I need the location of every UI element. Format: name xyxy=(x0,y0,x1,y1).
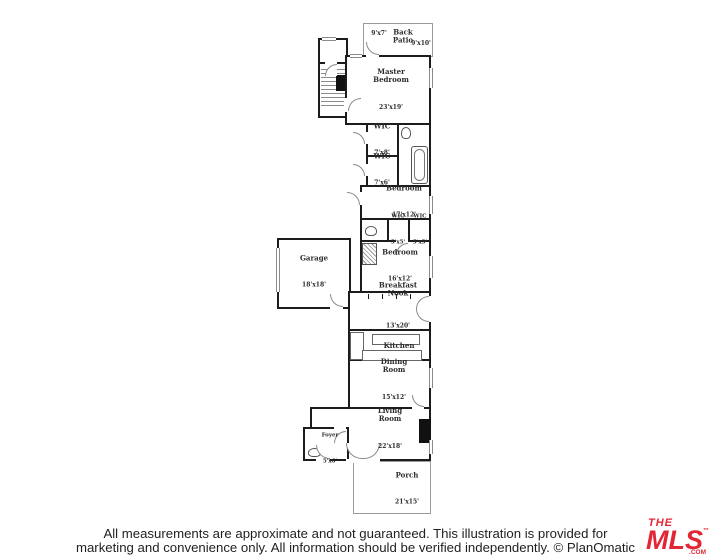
room-name: WIC xyxy=(413,214,427,221)
room-dims: 18'x18' xyxy=(300,282,328,290)
room-name: Bedroom xyxy=(382,248,418,256)
room-dims: 21'x15' xyxy=(395,499,419,507)
room-name: Living Room xyxy=(378,407,402,424)
room-name: Garage xyxy=(300,254,328,262)
room-name: Master Bedroom xyxy=(373,68,409,85)
door-gap xyxy=(346,459,380,463)
floor-plan-page: Back Patio 9'x7' 9'x10' Master Bedroom 2… xyxy=(0,0,711,560)
door-gap xyxy=(365,132,369,144)
window-icon xyxy=(429,368,433,388)
disclaimer-line-1: All measurements are approximate and not… xyxy=(0,527,711,540)
trademark-symbol: ™ xyxy=(703,528,709,534)
room-dims: 22'x18' xyxy=(378,443,402,451)
room-name: Bedroom xyxy=(386,184,422,192)
window-icon xyxy=(350,54,362,58)
door-arc-icon xyxy=(353,132,365,144)
room-label-foyer: Foyer 5'x6' xyxy=(322,414,339,485)
window-icon xyxy=(429,196,433,214)
toilet-icon xyxy=(365,226,377,236)
room-name: WIC xyxy=(374,122,391,130)
room-dims-back-patio-right: 9'x10' xyxy=(411,21,431,67)
door-arc-icon xyxy=(353,164,365,176)
door-gap xyxy=(365,164,369,176)
mls-logo: THE MLS™ .COM xyxy=(646,519,708,556)
disclaimer-line-2: marketing and convenience only. All info… xyxy=(0,541,711,554)
window-icon xyxy=(322,37,336,41)
linen-closet-icon xyxy=(362,243,377,265)
room-dims: 5'x6' xyxy=(322,458,339,465)
room-name: Dining Room xyxy=(381,358,407,375)
room-name: Porch xyxy=(395,471,419,479)
room-label-garage: Garage 18'x18' xyxy=(300,235,328,308)
room-name: Breakfast Nook xyxy=(379,282,417,299)
room-dims: 9'x10' xyxy=(411,40,431,48)
room-dims: 9'x7' xyxy=(371,30,387,38)
window-icon xyxy=(429,440,433,454)
garage-door-icon xyxy=(276,248,280,292)
deck-rail-tick xyxy=(368,294,369,299)
window-icon xyxy=(429,68,433,88)
door-gap xyxy=(412,407,424,411)
room-label-porch: Porch 21'x15' xyxy=(395,452,419,525)
room-name: Back Patio xyxy=(393,29,413,46)
room-name: WIC xyxy=(374,152,391,160)
window-icon xyxy=(429,256,433,278)
room-name: WIC xyxy=(391,214,405,221)
room-name: Foyer xyxy=(322,433,339,440)
